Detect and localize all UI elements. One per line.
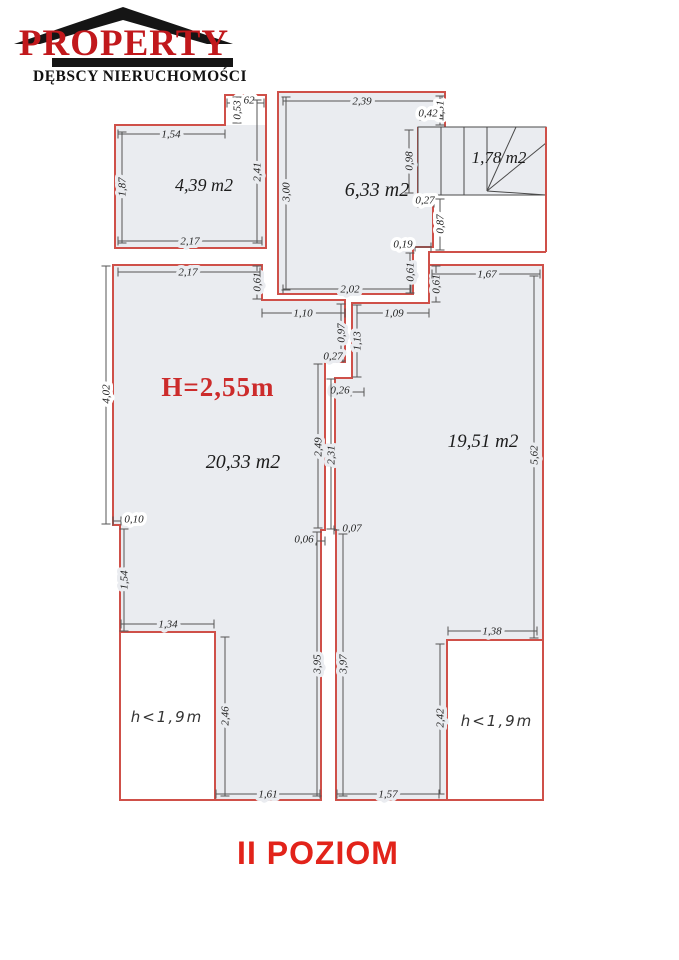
logo-brand-text: PROPERTY bbox=[19, 23, 229, 64]
dimension-label: 0,61 bbox=[252, 272, 264, 291]
dimension-label: 0,53 bbox=[232, 100, 244, 120]
dimension-label: 2,02 bbox=[340, 284, 360, 296]
dimension-label: 0,87 bbox=[435, 214, 447, 234]
dimension-label: 0,10 bbox=[124, 514, 144, 526]
dimension-label: 1,38 bbox=[482, 626, 502, 638]
dimension-label: 0,97 bbox=[336, 323, 348, 343]
dimension-label: 2,17 bbox=[178, 267, 198, 279]
plan-layers: h<1,9mh<1,9m1,540,620,531,872,412,172,39… bbox=[101, 92, 547, 801]
dimension-label: 0,98 bbox=[404, 151, 416, 171]
dimension-label: 5,62 bbox=[529, 445, 541, 465]
dimension-label: 1,09 bbox=[384, 308, 404, 320]
dimension-label: 2,41 bbox=[252, 162, 264, 181]
dimension-label: 0,07 bbox=[342, 523, 362, 535]
room-area-label: 6,33 m2 bbox=[345, 179, 409, 201]
dimension-label: 2,42 bbox=[435, 708, 447, 728]
dimension-label: 3,00 bbox=[281, 182, 293, 203]
floor-plan-page: PROPERTY DĘBSCY NIERUCHOMOŚCI h<1,9mh<1,… bbox=[0, 0, 679, 960]
dimension-label: 1,54 bbox=[161, 129, 181, 141]
room-area-label: 19,51 m2 bbox=[448, 431, 519, 452]
ceiling-height-note: H=2,55m bbox=[161, 372, 274, 402]
dimension-label: 2,17 bbox=[180, 236, 200, 248]
room-area-label: 4,39 m2 bbox=[175, 175, 233, 195]
dimension-label: 1,54 bbox=[119, 570, 131, 590]
low-height-label: h<1,9m bbox=[461, 712, 534, 730]
dimension-label: 2,31 bbox=[326, 445, 338, 464]
dimension-label: 0,42 bbox=[418, 108, 438, 120]
dimension-label: 1,13 bbox=[352, 331, 364, 351]
dimension-label: 0,27 bbox=[323, 351, 343, 363]
dimension-label: 2,46 bbox=[220, 706, 232, 726]
dimension-label: 2,49 bbox=[313, 437, 325, 457]
dimension-label: 3,95 bbox=[312, 654, 324, 675]
room-area-label: 20,33 m2 bbox=[206, 451, 280, 473]
dimension-label: 0,26 bbox=[330, 385, 350, 397]
dimension-label: 0,27 bbox=[415, 195, 435, 207]
logo-bar bbox=[52, 58, 233, 67]
page-title: II POZIOM bbox=[237, 835, 399, 871]
dimension-label: 1,10 bbox=[293, 308, 313, 320]
dimension-label: 0,06 bbox=[294, 534, 314, 546]
dimension-label: 1,57 bbox=[378, 789, 398, 801]
dimension-label: 0,61 bbox=[405, 262, 417, 281]
dimension-label: 1,34 bbox=[158, 619, 178, 631]
dimension-label: 1,87 bbox=[117, 177, 129, 197]
floor-plan-canvas: PROPERTY DĘBSCY NIERUCHOMOŚCI h<1,9mh<1,… bbox=[0, 0, 679, 960]
dimension-label: 1,61 bbox=[258, 789, 277, 801]
dimension-label: 3,97 bbox=[338, 654, 350, 675]
dimension-label: 1,67 bbox=[477, 269, 497, 281]
dimension-label: 2,39 bbox=[352, 96, 372, 108]
low-height-label: h<1,9m bbox=[131, 708, 204, 726]
logo-subtitle-text: DĘBSCY NIERUCHOMOŚCI bbox=[33, 68, 247, 85]
stairs-area-label: 1,78 m2 bbox=[472, 148, 527, 167]
dimension-label: 0,19 bbox=[393, 239, 413, 251]
agency-logo: PROPERTY DĘBSCY NIERUCHOMOŚCI bbox=[14, 7, 247, 85]
dimension-label: 4,02 bbox=[101, 384, 113, 404]
